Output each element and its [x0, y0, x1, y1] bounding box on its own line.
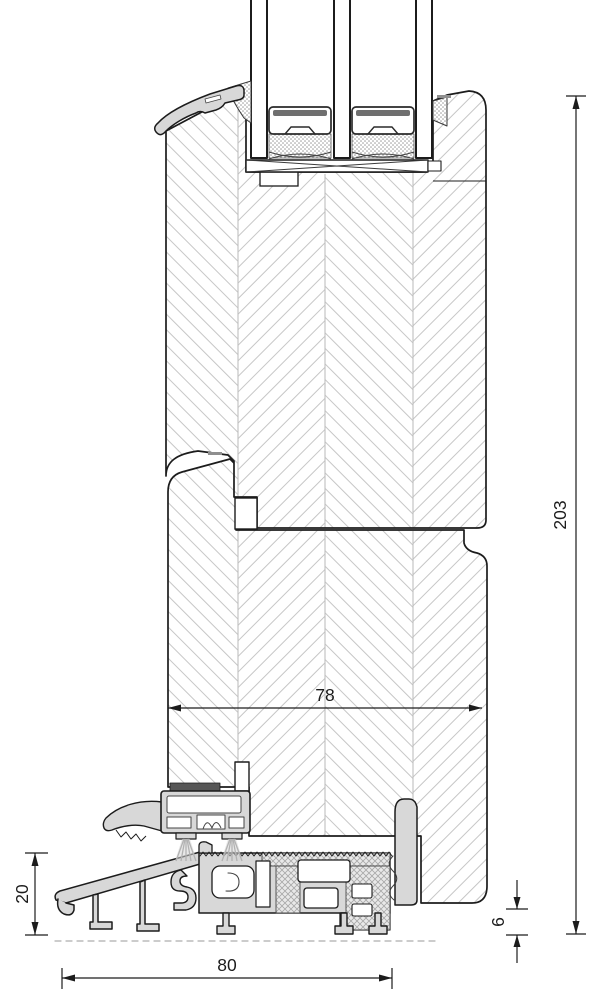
drawing-canvas: 203 78 20 6: [0, 0, 603, 1000]
dimension-label-20: 20: [12, 884, 32, 904]
leaf-notch: [260, 172, 298, 186]
rain-bar-top-seal: [170, 783, 220, 791]
dimension-label-203: 203: [550, 500, 570, 529]
reference-marker-rebate: [208, 452, 222, 455]
dimension-label-6: 6: [488, 917, 508, 927]
dimension-bottom-clearance: 6: [488, 880, 528, 963]
rain-bar-drip-wing: [103, 801, 162, 831]
dimension-overall-height: 203: [550, 96, 586, 934]
rain-bar-fixing-tab: [235, 762, 249, 791]
section-drawing: 203 78 20 6: [0, 0, 603, 1000]
dimension-threshold-front-height: 20: [12, 853, 48, 935]
reference-marker-top: [437, 95, 451, 98]
thermal-break-column-left: [276, 866, 300, 913]
dimension-label-78: 78: [315, 685, 334, 705]
rebate-groove: [235, 498, 257, 529]
dimension-label-80: 80: [217, 955, 237, 975]
dimension-threshold-width: 80: [62, 955, 392, 989]
threshold-ramp-profile: [55, 852, 200, 931]
